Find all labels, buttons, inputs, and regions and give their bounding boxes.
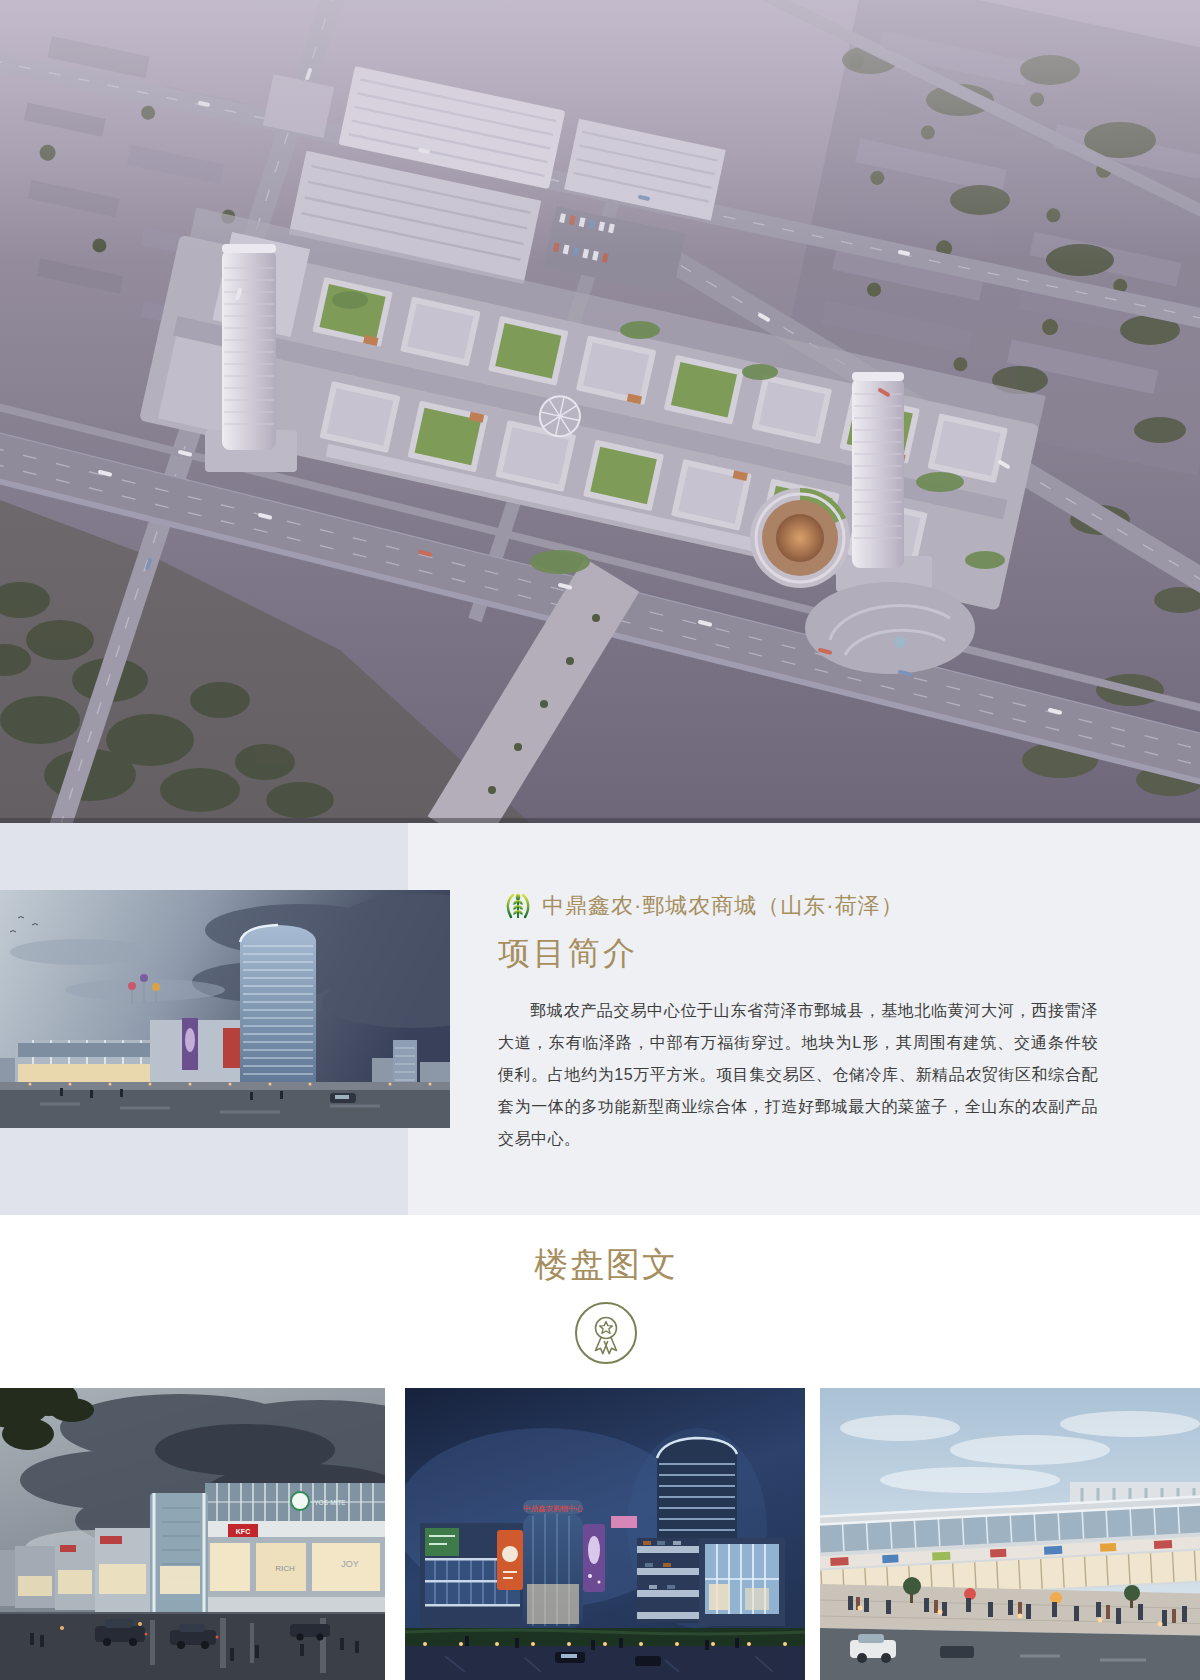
brand-row: 中鼎鑫农·鄄城农商城（山东·荷泽） — [498, 889, 1098, 923]
tower — [240, 925, 316, 1086]
sign-rich: RICH — [275, 1564, 295, 1573]
hero-aerial-rendering — [0, 0, 1200, 823]
medal-award-icon — [574, 1301, 638, 1365]
sign-yosmite: YOS·MITE — [314, 1499, 346, 1506]
intro-heading: 项目简介 — [498, 933, 1098, 973]
gallery-image-mall-night[interactable]: 中鼎鑫农购物中心 — [405, 1388, 805, 1680]
gallery-image-street-dusk[interactable]: YOS·MITE KFC RICH JOY — [0, 1388, 385, 1680]
intro-paragraph: 鄄城农产品交易中心位于山东省菏泽市鄄城县，基地北临黄河大河，西接雷泽大道，东有临… — [498, 995, 1098, 1155]
mall-sign-text: 中鼎鑫农购物中心 — [523, 1504, 584, 1513]
gallery-heading: 楼盘图文 — [6, 1243, 1200, 1285]
brand-title: 中鼎鑫农·鄄城农商城（山东·荷泽） — [542, 891, 904, 921]
aerial-illustration — [0, 0, 1200, 823]
gallery-image-shopping-street[interactable] — [820, 1388, 1200, 1680]
gallery-strip: YOS·MITE KFC RICH JOY — [0, 1388, 1200, 1680]
sign-joy: JOY — [341, 1559, 359, 1569]
project-intro-section: 中鼎鑫农·鄄城农商城（山东·荷泽） 项目简介 鄄城农产品交易中心位于山东省菏泽市… — [0, 823, 1200, 1215]
project-dusk-photo — [0, 890, 450, 1128]
wheat-sprout-logo-icon — [503, 891, 533, 921]
intro-text-block: 中鼎鑫农·鄄城农商城（山东·荷泽） 项目简介 鄄城农产品交易中心位于山东省菏泽市… — [498, 889, 1098, 1155]
round-building — [750, 488, 850, 588]
project-page: 中鼎鑫农·鄄城农商城（山东·荷泽） 项目简介 鄄城农产品交易中心位于山东省菏泽市… — [0, 0, 1200, 1680]
sign-kfc: KFC — [236, 1528, 250, 1535]
